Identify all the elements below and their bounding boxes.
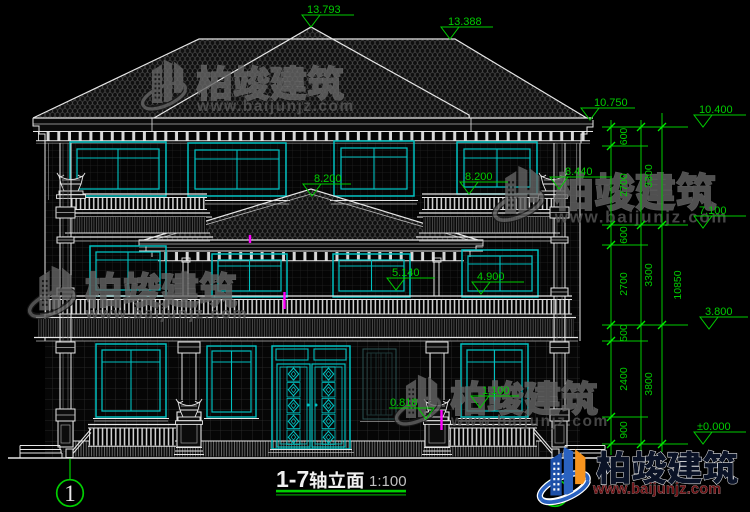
svg-text:4.900: 4.900: [477, 271, 505, 283]
svg-text:www.baijunjz.com: www.baijunjz.com: [85, 306, 248, 323]
svg-text:900: 900: [618, 421, 630, 439]
svg-text:www.baijunjz.com: www.baijunjz.com: [592, 482, 721, 498]
svg-text:3300: 3300: [643, 263, 655, 287]
svg-text:1-7: 1-7: [276, 466, 309, 492]
svg-text:600: 600: [618, 226, 630, 244]
svg-text:0.818: 0.818: [390, 397, 418, 409]
svg-text:3300: 3300: [643, 164, 655, 188]
svg-text:2700: 2700: [618, 272, 630, 296]
svg-text:13.388: 13.388: [448, 16, 482, 28]
svg-text:10850: 10850: [672, 270, 684, 299]
svg-text:13.793: 13.793: [307, 4, 341, 16]
svg-text:1:100: 1:100: [369, 473, 407, 490]
svg-text:3.800: 3.800: [705, 306, 733, 318]
svg-text:8.200: 8.200: [465, 171, 493, 183]
svg-text:2400: 2400: [618, 367, 630, 391]
svg-text:8.440: 8.440: [565, 166, 593, 178]
svg-text:500: 500: [618, 324, 630, 342]
svg-text:8.200: 8.200: [314, 173, 342, 185]
svg-text:600: 600: [618, 128, 630, 146]
svg-text:10.750: 10.750: [594, 97, 628, 109]
svg-text:3800: 3800: [643, 372, 655, 396]
svg-text:1.100: 1.100: [482, 385, 510, 397]
svg-text:www.baijunjz.com: www.baijunjz.com: [196, 98, 355, 115]
svg-text:1: 1: [64, 481, 76, 506]
svg-text:7.100: 7.100: [699, 205, 727, 217]
svg-text:±0.000: ±0.000: [697, 421, 731, 433]
svg-text:www.baijunjz.com: www.baijunjz.com: [450, 413, 609, 430]
svg-text:2700: 2700: [618, 173, 630, 197]
svg-text:5.140: 5.140: [392, 267, 420, 279]
svg-text:10.400: 10.400: [699, 104, 733, 116]
